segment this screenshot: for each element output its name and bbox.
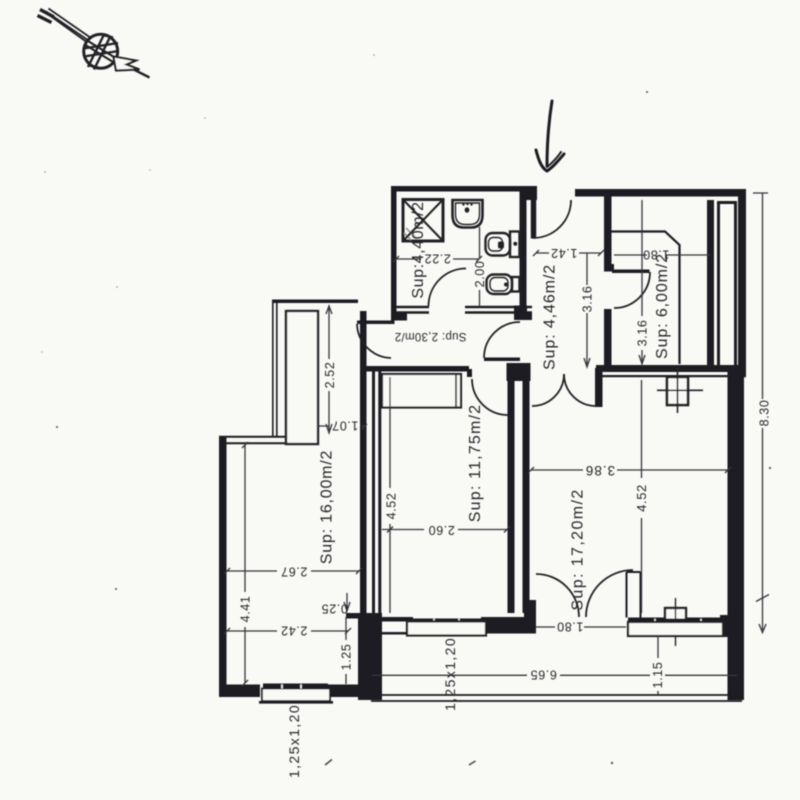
svg-text:1.25: 1.25 xyxy=(339,644,353,671)
svg-text:2.22: 2.22 xyxy=(424,252,451,266)
svg-text:2.67: 2.67 xyxy=(281,565,308,579)
svg-text:1.80: 1.80 xyxy=(557,620,584,634)
svg-text:1.07: 1.07 xyxy=(332,419,359,433)
svg-text:Sup:4,40m/2: Sup:4,40m/2 xyxy=(410,201,427,298)
svg-text:6.65: 6.65 xyxy=(530,668,557,682)
svg-text:Sup: 6,00m/2: Sup: 6,00m/2 xyxy=(654,253,671,359)
svg-text:2.00: 2.00 xyxy=(473,261,487,288)
svg-text:3.16: 3.16 xyxy=(635,320,649,347)
svg-text:2.42: 2.42 xyxy=(281,624,308,638)
svg-text:3.16: 3.16 xyxy=(580,286,594,313)
svg-text:Sup: 4,46m/2: Sup: 4,46m/2 xyxy=(542,264,559,370)
svg-text:2.60: 2.60 xyxy=(428,523,455,537)
svg-text:1,25x1,20: 1,25x1,20 xyxy=(286,704,302,778)
svg-text:8.30: 8.30 xyxy=(757,400,771,427)
svg-text:1.42: 1.42 xyxy=(551,246,578,260)
svg-text:1.15: 1.15 xyxy=(651,662,665,689)
svg-text:3.86: 3.86 xyxy=(585,463,615,478)
svg-text:Sup: 2,30m/2: Sup: 2,30m/2 xyxy=(394,330,466,342)
svg-text:4.41: 4.41 xyxy=(238,596,252,623)
svg-text:Sup: 17,20m/2: Sup: 17,20m/2 xyxy=(570,488,587,610)
svg-text:Sup: 11,75m/2: Sup: 11,75m/2 xyxy=(467,404,484,522)
svg-text:4.52: 4.52 xyxy=(634,484,649,512)
svg-text:2.52: 2.52 xyxy=(323,362,337,389)
svg-text:0.25: 0.25 xyxy=(321,602,348,616)
svg-text:1,25x1,20: 1,25x1,20 xyxy=(442,637,458,711)
svg-text:Sup: 16,00m/2: Sup: 16,00m/2 xyxy=(319,450,336,564)
svg-text:4.52: 4.52 xyxy=(384,493,398,520)
